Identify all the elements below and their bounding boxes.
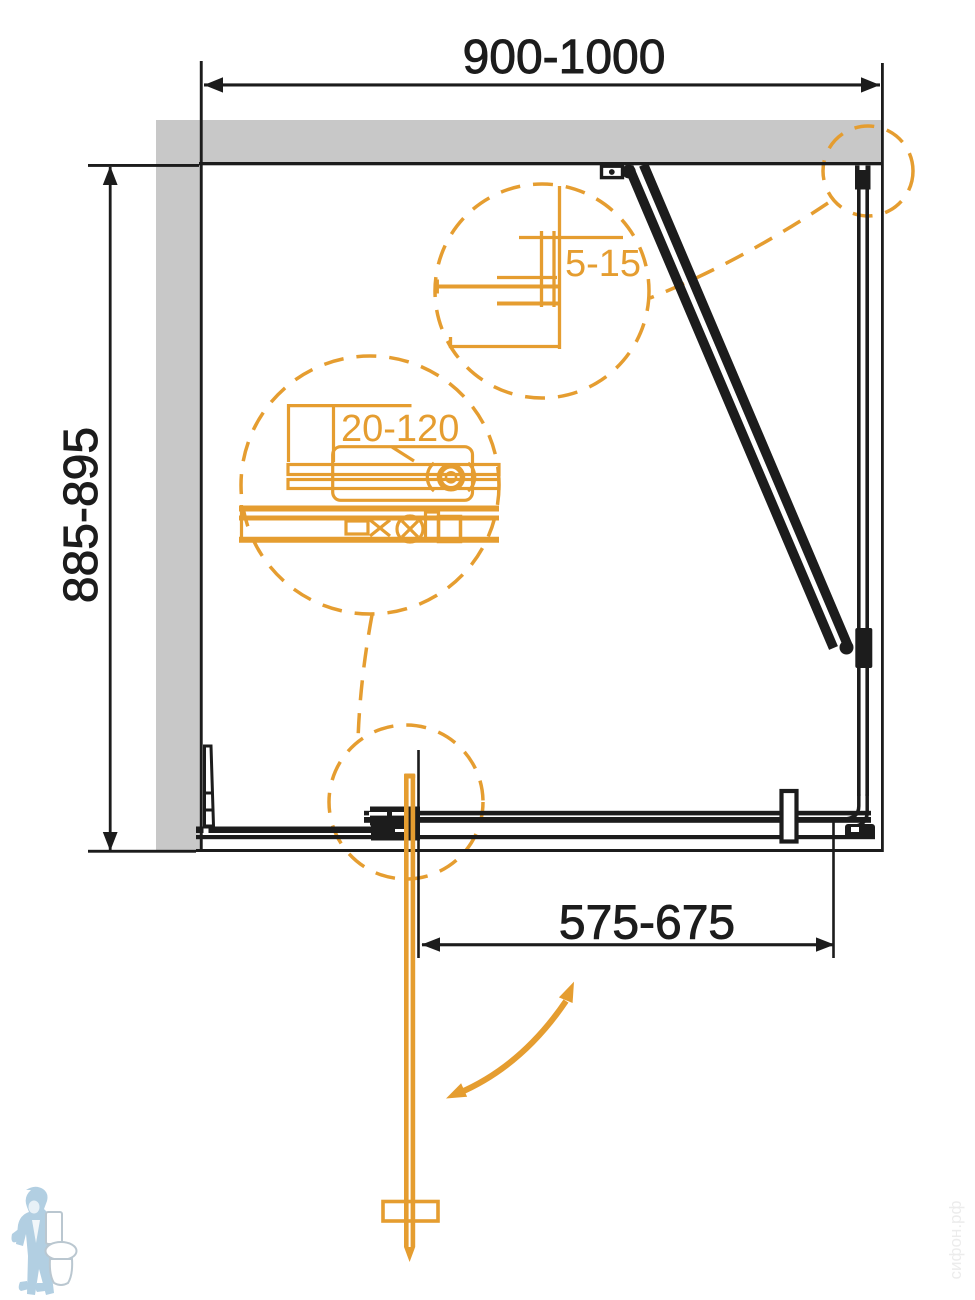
svg-text:885-895: 885-895 — [55, 427, 108, 603]
svg-text:20-120: 20-120 — [341, 408, 459, 450]
svg-text:575-675: 575-675 — [559, 897, 735, 950]
svg-text:сифон.рф: сифон.рф — [946, 1200, 965, 1279]
svg-text:5-15: 5-15 — [565, 243, 641, 285]
svg-text:900-1000: 900-1000 — [463, 31, 666, 84]
